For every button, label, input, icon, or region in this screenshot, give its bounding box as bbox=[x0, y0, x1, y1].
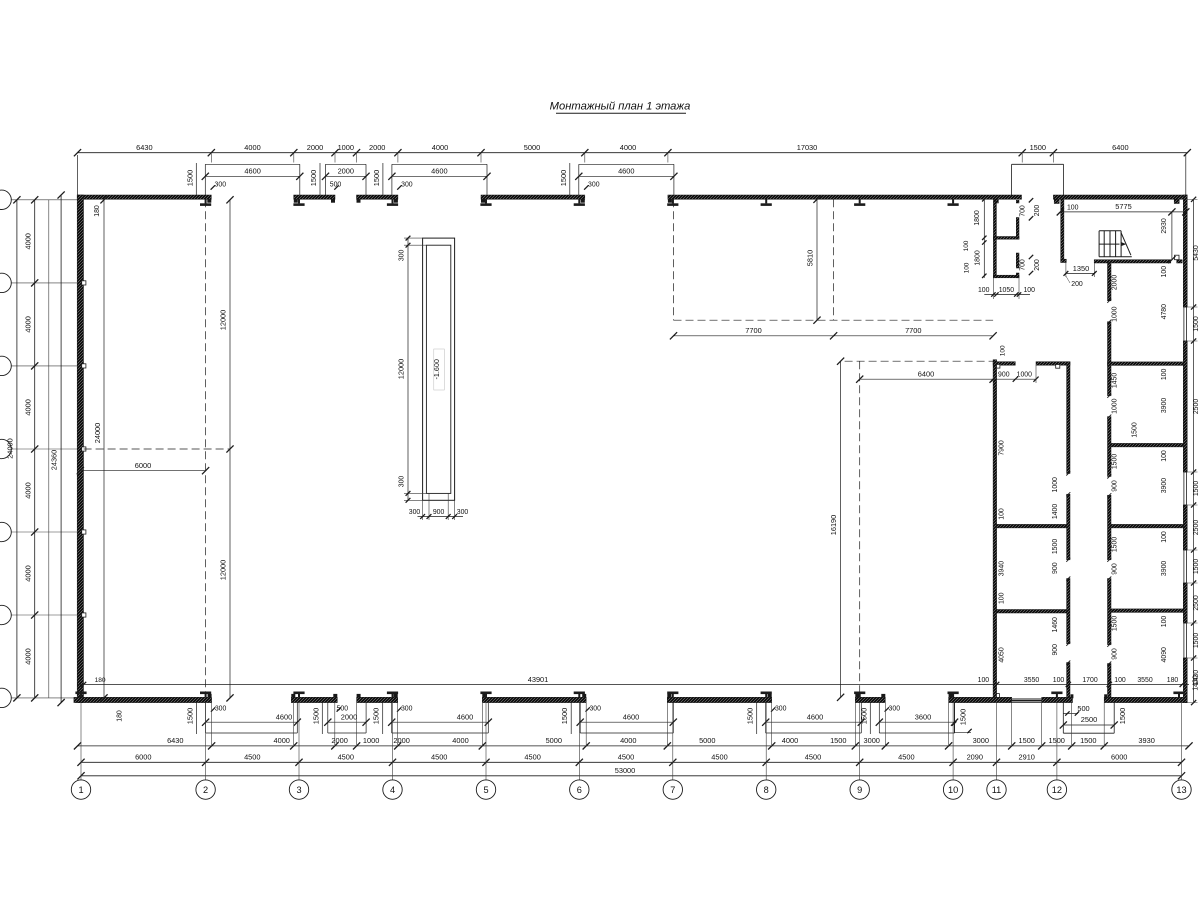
svg-text:5000: 5000 bbox=[546, 736, 562, 745]
svg-text:1500: 1500 bbox=[830, 736, 846, 745]
svg-text:4000: 4000 bbox=[782, 736, 798, 745]
svg-text:1050: 1050 bbox=[999, 287, 1014, 294]
svg-text:4500: 4500 bbox=[431, 753, 447, 762]
svg-text:4000: 4000 bbox=[23, 399, 32, 415]
svg-text:100: 100 bbox=[1161, 616, 1168, 628]
svg-text:300: 300 bbox=[889, 705, 901, 712]
svg-text:5000: 5000 bbox=[524, 143, 540, 152]
svg-text:300: 300 bbox=[775, 705, 787, 712]
svg-text:2000: 2000 bbox=[338, 167, 354, 176]
svg-text:2: 2 bbox=[203, 785, 208, 795]
svg-text:300: 300 bbox=[399, 476, 406, 488]
svg-text:4600: 4600 bbox=[276, 713, 292, 722]
svg-text:12: 12 bbox=[1052, 785, 1062, 795]
svg-text:1500: 1500 bbox=[1080, 736, 1096, 745]
svg-text:16190: 16190 bbox=[829, 515, 838, 536]
svg-text:4000: 4000 bbox=[620, 736, 636, 745]
svg-text:300: 300 bbox=[409, 509, 421, 516]
svg-text:2090: 2090 bbox=[967, 753, 983, 762]
svg-text:1000: 1000 bbox=[1112, 398, 1119, 413]
svg-text:7900: 7900 bbox=[999, 440, 1006, 455]
svg-text:100: 100 bbox=[1114, 677, 1126, 684]
svg-text:4600: 4600 bbox=[623, 713, 639, 722]
svg-text:5430: 5430 bbox=[1193, 245, 1200, 260]
svg-text:2930: 2930 bbox=[1161, 218, 1168, 233]
svg-text:6400: 6400 bbox=[1112, 143, 1128, 152]
svg-text:8: 8 bbox=[764, 785, 769, 795]
svg-text:100: 100 bbox=[999, 508, 1006, 520]
svg-text:6000: 6000 bbox=[135, 753, 151, 762]
svg-text:1500: 1500 bbox=[1193, 633, 1200, 648]
svg-text:100: 100 bbox=[963, 262, 970, 273]
svg-text:1500: 1500 bbox=[309, 170, 318, 186]
svg-text:1000: 1000 bbox=[363, 736, 379, 745]
svg-text:4600: 4600 bbox=[618, 167, 634, 176]
svg-text:300: 300 bbox=[401, 705, 413, 712]
svg-text:12000: 12000 bbox=[218, 560, 227, 581]
svg-text:4600: 4600 bbox=[807, 713, 823, 722]
svg-text:2000: 2000 bbox=[369, 143, 385, 152]
svg-text:2000: 2000 bbox=[1112, 275, 1119, 290]
svg-text:5: 5 bbox=[483, 785, 488, 795]
svg-text:3940: 3940 bbox=[999, 561, 1006, 576]
svg-text:4000: 4000 bbox=[452, 736, 468, 745]
svg-text:6: 6 bbox=[577, 785, 582, 795]
svg-text:1500: 1500 bbox=[1112, 616, 1119, 631]
svg-text:2500: 2500 bbox=[1193, 595, 1200, 610]
svg-text:6400: 6400 bbox=[918, 369, 934, 378]
svg-text:2500: 2500 bbox=[1193, 399, 1200, 414]
svg-text:4000: 4000 bbox=[23, 233, 32, 249]
svg-text:7700: 7700 bbox=[745, 326, 761, 335]
svg-text:1000: 1000 bbox=[338, 143, 354, 152]
svg-text:4780: 4780 bbox=[1161, 304, 1168, 319]
svg-text:1460: 1460 bbox=[1052, 617, 1059, 632]
svg-text:900: 900 bbox=[1112, 563, 1119, 575]
svg-text:900: 900 bbox=[998, 372, 1010, 379]
svg-text:700: 700 bbox=[1020, 205, 1027, 217]
svg-text:1500: 1500 bbox=[1193, 316, 1200, 331]
svg-text:100: 100 bbox=[963, 240, 970, 251]
svg-text:300: 300 bbox=[589, 705, 601, 712]
svg-text:1500: 1500 bbox=[859, 708, 868, 724]
svg-text:6430: 6430 bbox=[136, 143, 152, 152]
svg-text:100: 100 bbox=[1053, 677, 1065, 684]
svg-text:180: 180 bbox=[117, 710, 124, 722]
svg-text:9: 9 bbox=[857, 785, 862, 795]
svg-text:2000: 2000 bbox=[307, 143, 323, 152]
svg-text:1500: 1500 bbox=[185, 170, 194, 186]
svg-text:6430: 6430 bbox=[167, 736, 183, 745]
svg-text:500: 500 bbox=[1077, 704, 1089, 713]
svg-text:900: 900 bbox=[433, 509, 445, 516]
svg-text:Монтажный план 1 этажа: Монтажный план 1 этажа bbox=[550, 101, 691, 113]
svg-text:200: 200 bbox=[1071, 281, 1083, 288]
svg-text:900: 900 bbox=[1112, 648, 1119, 660]
svg-text:4500: 4500 bbox=[524, 753, 540, 762]
svg-text:100: 100 bbox=[1161, 368, 1168, 380]
svg-text:5775: 5775 bbox=[1115, 202, 1131, 211]
svg-text:1000: 1000 bbox=[1112, 306, 1119, 321]
svg-text:6000: 6000 bbox=[135, 461, 151, 470]
svg-text:100: 100 bbox=[1067, 205, 1079, 212]
svg-text:13: 13 bbox=[1176, 785, 1186, 795]
svg-text:4000: 4000 bbox=[273, 736, 289, 745]
svg-text:1500: 1500 bbox=[1112, 454, 1119, 469]
svg-text:900: 900 bbox=[1052, 562, 1059, 574]
svg-text:2000: 2000 bbox=[331, 736, 347, 745]
svg-text:100: 100 bbox=[1161, 266, 1168, 278]
svg-text:3550: 3550 bbox=[1137, 677, 1152, 684]
svg-text:5000: 5000 bbox=[699, 736, 715, 745]
svg-text:2000: 2000 bbox=[341, 713, 357, 722]
svg-text:7700: 7700 bbox=[905, 326, 921, 335]
svg-text:3550: 3550 bbox=[1024, 677, 1039, 684]
svg-text:300: 300 bbox=[588, 181, 600, 188]
svg-text:1450: 1450 bbox=[1112, 373, 1119, 388]
svg-text:4500: 4500 bbox=[711, 753, 727, 762]
svg-text:4000: 4000 bbox=[244, 143, 260, 152]
svg-text:1000: 1000 bbox=[1017, 372, 1032, 379]
svg-text:17030: 17030 bbox=[797, 143, 818, 152]
svg-text:1800: 1800 bbox=[974, 210, 981, 225]
svg-text:180: 180 bbox=[1167, 677, 1179, 684]
svg-text:300: 300 bbox=[399, 249, 406, 261]
svg-text:700: 700 bbox=[1020, 259, 1027, 271]
svg-text:300: 300 bbox=[215, 181, 227, 188]
svg-text:43901: 43901 bbox=[528, 675, 549, 684]
svg-text:3600: 3600 bbox=[915, 713, 931, 722]
svg-text:4600: 4600 bbox=[457, 713, 473, 722]
svg-text:1500: 1500 bbox=[311, 708, 320, 724]
svg-text:300: 300 bbox=[401, 181, 413, 188]
svg-text:1400: 1400 bbox=[1052, 504, 1059, 519]
svg-text:12000: 12000 bbox=[397, 359, 406, 380]
svg-text:4600: 4600 bbox=[244, 167, 260, 176]
svg-text:4500: 4500 bbox=[898, 753, 914, 762]
svg-text:7: 7 bbox=[670, 785, 675, 795]
svg-text:100: 100 bbox=[1161, 450, 1168, 462]
svg-text:4500: 4500 bbox=[805, 753, 821, 762]
svg-text:3000: 3000 bbox=[973, 736, 989, 745]
svg-text:4000: 4000 bbox=[23, 648, 32, 664]
svg-text:200: 200 bbox=[1034, 259, 1041, 271]
svg-text:1500: 1500 bbox=[1132, 422, 1139, 437]
svg-text:11: 11 bbox=[992, 785, 1002, 795]
svg-text:4000: 4000 bbox=[23, 482, 32, 498]
svg-text:4600: 4600 bbox=[431, 167, 447, 176]
svg-text:100: 100 bbox=[978, 677, 990, 684]
svg-text:1500: 1500 bbox=[1018, 736, 1034, 745]
svg-text:4000: 4000 bbox=[432, 143, 448, 152]
svg-text:1500: 1500 bbox=[958, 709, 967, 725]
svg-text:3: 3 bbox=[296, 785, 301, 795]
svg-text:24360: 24360 bbox=[50, 450, 59, 471]
svg-text:2910: 2910 bbox=[1018, 753, 1034, 762]
svg-text:3900: 3900 bbox=[1161, 398, 1168, 413]
svg-text:4000: 4000 bbox=[23, 565, 32, 581]
svg-text:3900: 3900 bbox=[1161, 478, 1168, 493]
svg-text:53000: 53000 bbox=[615, 766, 636, 775]
svg-text:1500: 1500 bbox=[1052, 539, 1059, 554]
svg-text:4: 4 bbox=[390, 785, 395, 795]
svg-text:900: 900 bbox=[1112, 480, 1119, 492]
svg-text:24000: 24000 bbox=[93, 423, 102, 444]
svg-text:200: 200 bbox=[1034, 205, 1041, 217]
svg-text:1: 1 bbox=[78, 785, 83, 795]
svg-text:1700: 1700 bbox=[1082, 677, 1097, 684]
svg-text:1500: 1500 bbox=[559, 170, 568, 186]
svg-text:1500: 1500 bbox=[1112, 537, 1119, 552]
svg-text:-1.600: -1.600 bbox=[432, 359, 441, 379]
svg-text:1430: 1430 bbox=[1193, 670, 1200, 685]
svg-text:4050: 4050 bbox=[999, 647, 1006, 662]
svg-text:10: 10 bbox=[948, 785, 958, 795]
svg-text:1800: 1800 bbox=[975, 250, 982, 265]
svg-text:1500: 1500 bbox=[746, 708, 755, 724]
svg-text:1000: 1000 bbox=[1052, 477, 1059, 492]
svg-text:5810: 5810 bbox=[805, 250, 814, 266]
svg-text:12000: 12000 bbox=[218, 310, 227, 331]
svg-text:1500: 1500 bbox=[1193, 559, 1200, 574]
svg-text:500: 500 bbox=[330, 181, 342, 188]
svg-text:1500: 1500 bbox=[1118, 708, 1127, 724]
svg-text:180: 180 bbox=[94, 205, 101, 217]
svg-text:1350: 1350 bbox=[1073, 264, 1089, 273]
svg-text:300: 300 bbox=[457, 509, 469, 516]
svg-text:100: 100 bbox=[978, 287, 990, 294]
svg-text:1500: 1500 bbox=[1030, 143, 1046, 152]
svg-text:4500: 4500 bbox=[338, 753, 354, 762]
svg-text:3900: 3900 bbox=[1161, 561, 1168, 576]
svg-text:1500: 1500 bbox=[560, 708, 569, 724]
svg-text:100: 100 bbox=[1161, 531, 1168, 543]
svg-text:3930: 3930 bbox=[1138, 736, 1154, 745]
svg-text:1500: 1500 bbox=[372, 708, 381, 724]
svg-text:2500: 2500 bbox=[1193, 520, 1200, 535]
svg-text:900: 900 bbox=[1052, 644, 1059, 656]
svg-text:1500: 1500 bbox=[186, 708, 195, 724]
svg-text:4090: 4090 bbox=[1161, 647, 1168, 662]
svg-text:2000: 2000 bbox=[393, 736, 409, 745]
svg-text:2500: 2500 bbox=[1081, 715, 1097, 724]
svg-text:1500: 1500 bbox=[1193, 481, 1200, 496]
svg-text:500: 500 bbox=[337, 705, 349, 712]
svg-text:100: 100 bbox=[999, 345, 1006, 356]
svg-text:100: 100 bbox=[1023, 287, 1035, 294]
svg-text:300: 300 bbox=[215, 705, 227, 712]
svg-text:4000: 4000 bbox=[620, 143, 636, 152]
svg-text:100: 100 bbox=[999, 592, 1006, 604]
svg-text:1500: 1500 bbox=[372, 170, 381, 186]
svg-text:3000: 3000 bbox=[863, 736, 879, 745]
svg-text:4000: 4000 bbox=[23, 316, 32, 332]
svg-text:6000: 6000 bbox=[1111, 753, 1127, 762]
svg-text:4500: 4500 bbox=[244, 753, 260, 762]
svg-text:4500: 4500 bbox=[618, 753, 634, 762]
